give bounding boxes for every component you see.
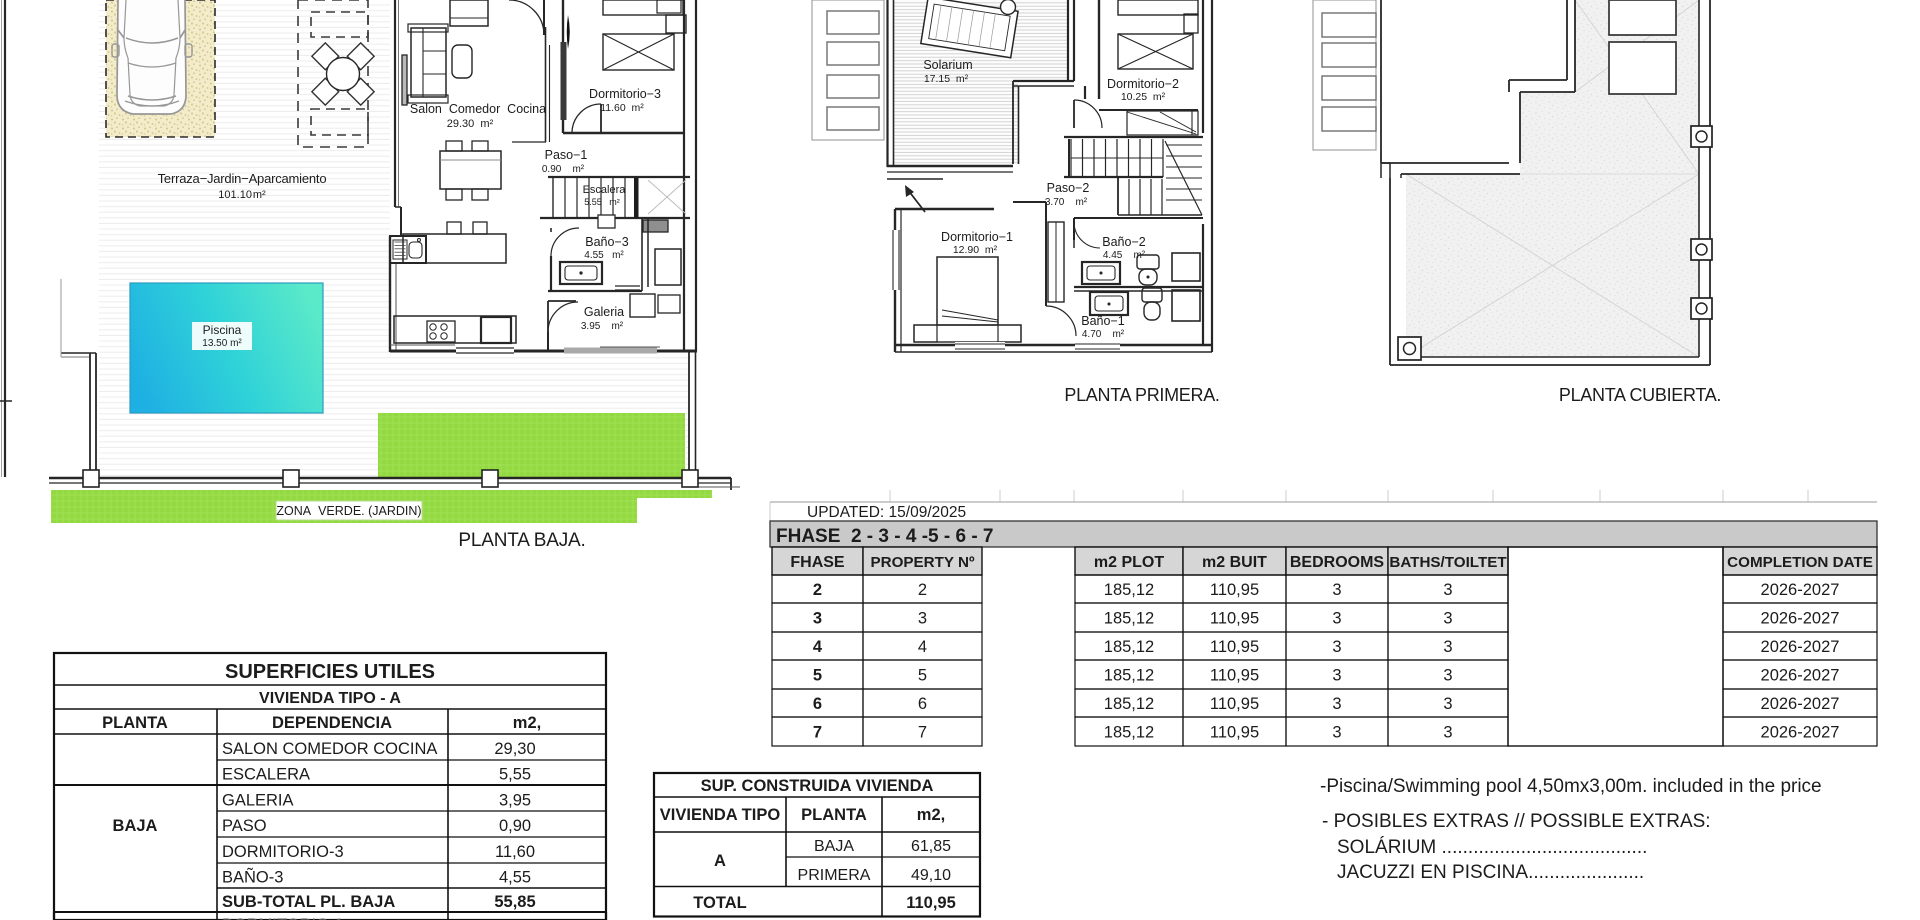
svg-text:185,12: 185,12 bbox=[1104, 610, 1154, 628]
svg-text:55,85: 55,85 bbox=[494, 893, 535, 911]
svg-text:110,95: 110,95 bbox=[1210, 638, 1259, 656]
svg-text:13.50 m²: 13.50 m² bbox=[202, 338, 242, 349]
svg-text:3: 3 bbox=[1443, 695, 1452, 713]
svg-text:6: 6 bbox=[918, 695, 927, 713]
svg-text:BEDROOMS: BEDROOMS bbox=[1290, 554, 1385, 571]
svg-text:TOTAL: TOTAL bbox=[693, 894, 746, 912]
svg-text:29.30 m²: 29.30 m² bbox=[447, 118, 494, 130]
svg-text:7: 7 bbox=[813, 724, 822, 742]
svg-text:Dormitorio−3: Dormitorio−3 bbox=[589, 87, 661, 101]
svg-text:Dormitorio−1: Dormitorio−1 bbox=[941, 230, 1013, 244]
svg-text:11.60 m²: 11.60 m² bbox=[600, 102, 644, 114]
svg-text:SOLÁRIUM .....................: SOLÁRIUM ...............................… bbox=[1337, 837, 1647, 858]
svg-text:COMPLETION DATE: COMPLETION DATE bbox=[1727, 554, 1873, 571]
svg-text:JACUZZI EN PISCINA............: JACUZZI EN PISCINA...................... bbox=[1337, 862, 1644, 883]
svg-text:110,95: 110,95 bbox=[1210, 667, 1259, 685]
svg-text:110,95: 110,95 bbox=[1210, 724, 1259, 742]
svg-text:7: 7 bbox=[918, 724, 927, 742]
svg-text:BAJA: BAJA bbox=[113, 817, 158, 835]
svg-text:61,85: 61,85 bbox=[911, 838, 951, 855]
svg-text:185,12: 185,12 bbox=[1104, 695, 1154, 713]
svg-text:3: 3 bbox=[1443, 638, 1452, 656]
svg-text:m2 PLOT: m2 PLOT bbox=[1094, 554, 1164, 571]
svg-text:3: 3 bbox=[1443, 724, 1452, 742]
svg-text:2: 2 bbox=[813, 581, 822, 599]
svg-text:3: 3 bbox=[1332, 724, 1341, 742]
svg-text:Paso−2: Paso−2 bbox=[1047, 181, 1090, 195]
svg-text:4,55: 4,55 bbox=[499, 869, 531, 887]
svg-text:5: 5 bbox=[813, 667, 822, 685]
svg-text:110,95: 110,95 bbox=[906, 894, 956, 912]
svg-text:2026-2027: 2026-2027 bbox=[1761, 638, 1840, 656]
svg-text:4.70 m²: 4.70 m² bbox=[1082, 329, 1125, 340]
svg-text:BATHS/TOILTET: BATHS/TOILTET bbox=[1389, 554, 1507, 571]
svg-text:VIVIENDA TIPO - A: VIVIENDA TIPO - A bbox=[259, 690, 401, 707]
svg-text:DORMITORIO-3: DORMITORIO-3 bbox=[222, 843, 344, 861]
svg-text:Solarium: Solarium bbox=[923, 58, 972, 72]
svg-text:Baño−2: Baño−2 bbox=[1102, 235, 1145, 249]
svg-text:Dormitorio−2: Dormitorio−2 bbox=[1107, 77, 1179, 91]
svg-text:10.25 m²: 10.25 m² bbox=[1121, 91, 1166, 103]
svg-text:3: 3 bbox=[1443, 667, 1452, 685]
svg-text:29,30: 29,30 bbox=[494, 740, 535, 758]
svg-text:PLANTA: PLANTA bbox=[801, 806, 867, 824]
svg-text:m2,: m2, bbox=[917, 806, 945, 824]
svg-text:3: 3 bbox=[1443, 610, 1452, 628]
svg-text:3.95 m²: 3.95 m² bbox=[581, 321, 624, 332]
svg-text:PASO: PASO bbox=[222, 817, 267, 835]
svg-text:PLANTA CUBIERTA.: PLANTA CUBIERTA. bbox=[1559, 385, 1721, 405]
svg-text:BAÑO-3: BAÑO-3 bbox=[222, 867, 283, 887]
svg-text:4: 4 bbox=[918, 638, 927, 656]
svg-text:BAJA: BAJA bbox=[814, 838, 854, 855]
svg-text:0.90 m²: 0.90 m² bbox=[542, 164, 585, 175]
svg-text:3: 3 bbox=[813, 610, 822, 628]
svg-text:2026-2027: 2026-2027 bbox=[1761, 695, 1840, 713]
svg-text:VIVIENDA TIPO: VIVIENDA TIPO bbox=[660, 806, 781, 824]
svg-text:0,90: 0,90 bbox=[499, 817, 531, 835]
svg-text:FHASE 2 - 3 - 4 -5 - 6 - 7: FHASE 2 - 3 - 4 -5 - 6 - 7 bbox=[776, 526, 994, 547]
svg-text:Terraza−Jardin−Aparcamiento: Terraza−Jardin−Aparcamiento bbox=[158, 171, 327, 186]
svg-text:PLANTA PRIMERA.: PLANTA PRIMERA. bbox=[1064, 385, 1219, 405]
svg-text:- POSIBLES EXTRAS // POSSIBLE: - POSIBLES EXTRAS // POSSIBLE EXTRAS: bbox=[1322, 811, 1711, 832]
svg-text:Baño−1: Baño−1 bbox=[1081, 314, 1124, 328]
svg-text:4.55 m²: 4.55 m² bbox=[584, 250, 624, 261]
svg-text:A: A bbox=[714, 852, 726, 870]
svg-text:110,95: 110,95 bbox=[1210, 610, 1259, 628]
svg-text:5.55 m²: 5.55 m² bbox=[584, 197, 620, 207]
svg-text:Escalera: Escalera bbox=[583, 184, 627, 196]
svg-text:17.15 m²: 17.15 m² bbox=[924, 73, 969, 85]
svg-text:101.10 m²: 101.10 m² bbox=[218, 189, 266, 201]
svg-text:Paso−1: Paso−1 bbox=[545, 148, 588, 162]
svg-text:m2,: m2, bbox=[513, 714, 541, 732]
svg-text:5,55: 5,55 bbox=[499, 766, 531, 784]
svg-text:m2 BUIT: m2 BUIT bbox=[1202, 554, 1267, 571]
svg-text:3: 3 bbox=[1332, 667, 1341, 685]
svg-text:5: 5 bbox=[918, 667, 927, 685]
svg-text:2026-2027: 2026-2027 bbox=[1761, 724, 1840, 742]
svg-text:ZONA VERDE. (JARDIN): ZONA VERDE. (JARDIN) bbox=[276, 504, 421, 518]
svg-text:185,12: 185,12 bbox=[1104, 638, 1154, 656]
svg-text:UPDATED: 15/09/2025: UPDATED: 15/09/2025 bbox=[807, 504, 966, 521]
svg-text:3: 3 bbox=[1332, 610, 1341, 628]
svg-text:DEPENDENCIA: DEPENDENCIA bbox=[272, 714, 392, 732]
svg-text:4: 4 bbox=[813, 638, 823, 656]
svg-text:PROPERTY Nº: PROPERTY Nº bbox=[870, 554, 974, 571]
svg-text:-Piscina/Swimming pool 4,50mx3: -Piscina/Swimming pool 4,50mx3,00m. incl… bbox=[1320, 776, 1822, 797]
svg-text:PLANTA BAJA.: PLANTA BAJA. bbox=[458, 530, 585, 551]
svg-text:12.90 m²: 12.90 m² bbox=[953, 244, 998, 256]
svg-text:3: 3 bbox=[1443, 581, 1452, 599]
svg-text:2026-2027: 2026-2027 bbox=[1761, 610, 1840, 628]
svg-text:SUP. CONSTRUIDA VIVIENDA: SUP. CONSTRUIDA VIVIENDA bbox=[701, 777, 934, 795]
svg-text:ESCALERA: ESCALERA bbox=[222, 766, 310, 784]
svg-text:PLANTA: PLANTA bbox=[102, 714, 168, 732]
svg-text:3,95: 3,95 bbox=[499, 791, 531, 809]
svg-text:49,10: 49,10 bbox=[911, 867, 951, 884]
svg-text:185,12: 185,12 bbox=[1104, 724, 1154, 742]
svg-text:185,12: 185,12 bbox=[1104, 667, 1154, 685]
svg-text:Baño−3: Baño−3 bbox=[585, 235, 628, 249]
svg-text:3: 3 bbox=[1332, 638, 1341, 656]
svg-text:11,60: 11,60 bbox=[495, 843, 535, 861]
svg-text:110,95: 110,95 bbox=[1210, 581, 1259, 599]
svg-text:Galeria: Galeria bbox=[584, 305, 624, 319]
svg-text:4.45 m²: 4.45 m² bbox=[1103, 250, 1146, 261]
svg-text:6: 6 bbox=[813, 695, 822, 713]
svg-text:GALERIA: GALERIA bbox=[222, 791, 294, 809]
svg-text:185,12: 185,12 bbox=[1104, 581, 1154, 599]
svg-text:Salon Comedor Cocina: Salon Comedor Cocina bbox=[410, 102, 546, 116]
svg-text:DORMITORIO-1: DORMITORIO-1 bbox=[222, 916, 344, 920]
svg-text:2026-2027: 2026-2027 bbox=[1761, 581, 1840, 599]
svg-text:FHASE: FHASE bbox=[790, 554, 845, 571]
svg-text:SUB-TOTAL PL. BAJA: SUB-TOTAL PL. BAJA bbox=[222, 893, 395, 911]
svg-text:PRIMERA: PRIMERA bbox=[798, 867, 871, 884]
svg-text:Piscina: Piscina bbox=[203, 323, 242, 337]
svg-text:3: 3 bbox=[918, 610, 927, 628]
svg-text:SALON COMEDOR COCINA: SALON COMEDOR COCINA bbox=[222, 740, 437, 758]
svg-text:3: 3 bbox=[1332, 695, 1341, 713]
svg-text:2026-2027: 2026-2027 bbox=[1761, 667, 1840, 685]
svg-text:2: 2 bbox=[918, 581, 927, 599]
svg-text:110,95: 110,95 bbox=[1210, 695, 1259, 713]
svg-text:SUPERFICIES UTILES: SUPERFICIES UTILES bbox=[225, 661, 435, 683]
svg-text:3.70 m²: 3.70 m² bbox=[1045, 197, 1088, 208]
svg-text:3: 3 bbox=[1332, 581, 1341, 599]
